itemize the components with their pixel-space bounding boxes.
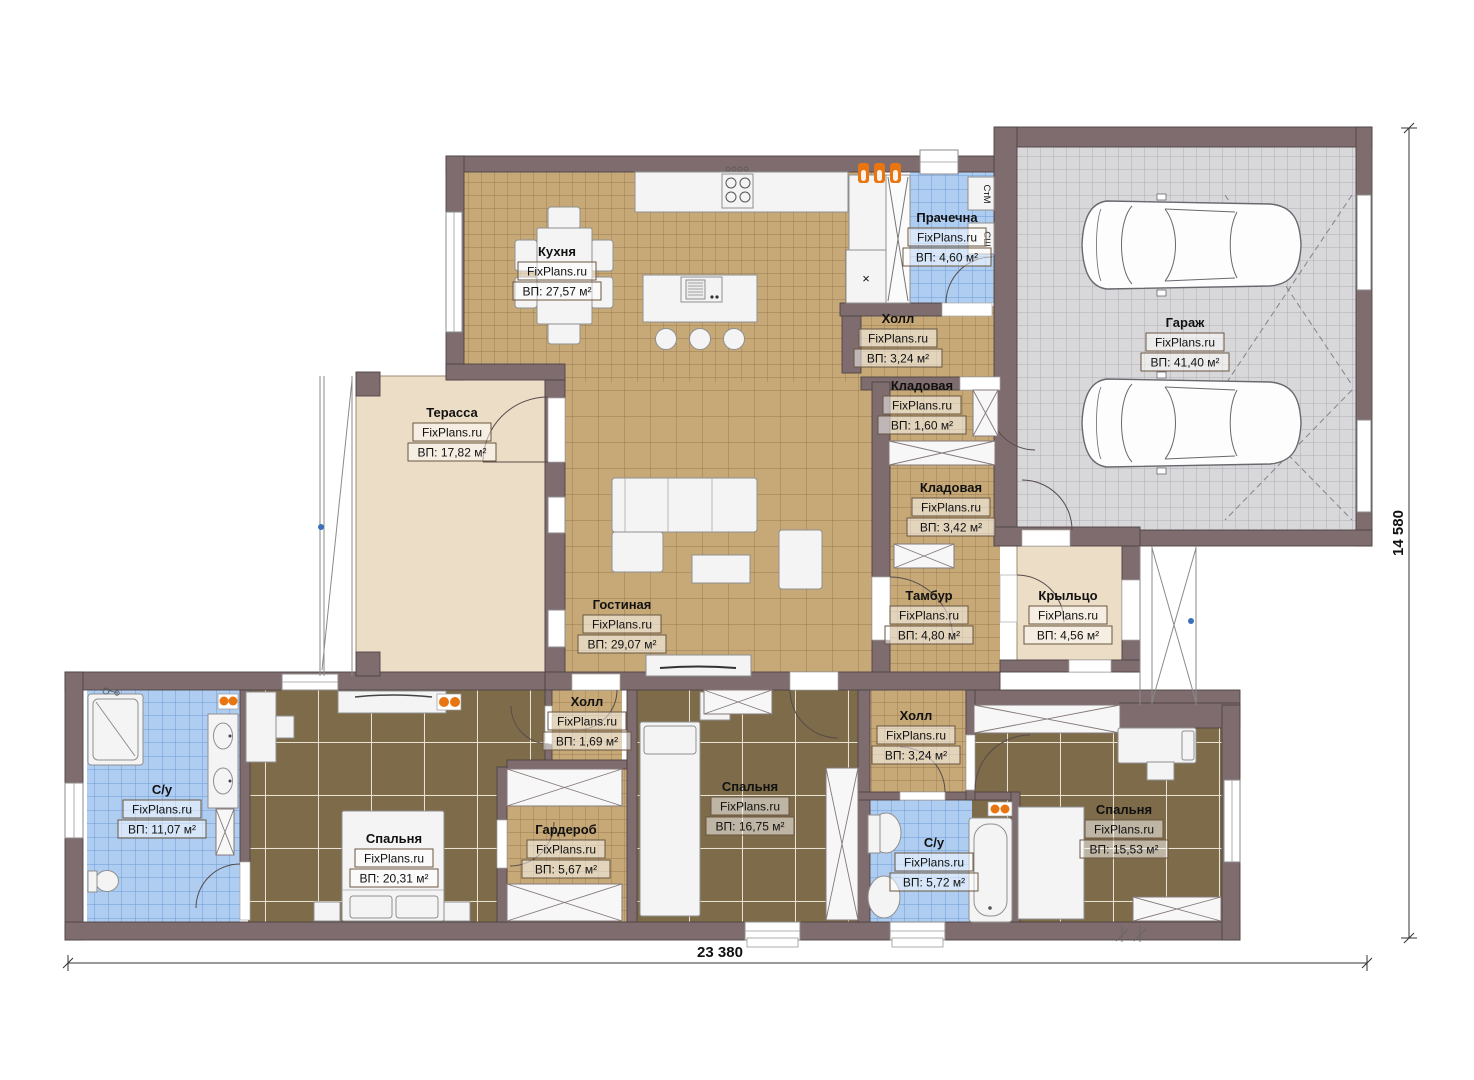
svg-text:ВП: 3,24 м²: ВП: 3,24 м² [867,352,929,366]
svg-text:23 380: 23 380 [697,944,743,961]
svg-text:Холл: Холл [900,708,933,723]
svg-text:ВП: 27,57 м²: ВП: 27,57 м² [523,285,592,299]
svg-text:СтМ: СтМ [981,184,992,203]
svg-text:ВП: 29,07 м²: ВП: 29,07 м² [588,638,657,652]
svg-text:ВП: 5,72 м²: ВП: 5,72 м² [903,876,965,890]
svg-text:FixPlans.ru: FixPlans.ru [892,399,952,413]
svg-text:Спальня: Спальня [722,779,778,794]
svg-text:ВП: 1,69 м²: ВП: 1,69 м² [556,735,618,749]
svg-text:Кухня: Кухня [538,244,576,259]
svg-text:С/у: С/у [924,835,945,850]
svg-text:ВП: 17,82 м²: ВП: 17,82 м² [418,446,487,460]
svg-text:С/у: С/у [152,782,173,797]
svg-text:×: × [862,271,870,286]
svg-text:Холл: Холл [882,311,915,326]
svg-text:ВП: 4,80 м²: ВП: 4,80 м² [898,629,960,643]
svg-text:ВП: 16,75 м²: ВП: 16,75 м² [716,820,785,834]
svg-text:FixPlans.ru: FixPlans.ru [899,609,959,623]
svg-text:Гостиная: Гостиная [593,597,652,612]
svg-text:Гараж: Гараж [1166,315,1206,330]
svg-text:ВП: 3,24 м²: ВП: 3,24 м² [885,749,947,763]
svg-text:ВП: 1,60 м²: ВП: 1,60 м² [891,419,953,433]
svg-text:FixPlans.ru: FixPlans.ru [868,332,928,346]
svg-text:FixPlans.ru: FixPlans.ru [1094,823,1154,837]
svg-text:FixPlans.ru: FixPlans.ru [557,715,617,729]
svg-text:Тамбур: Тамбур [905,588,952,603]
svg-text:ВП: 41,40 м²: ВП: 41,40 м² [1151,356,1220,370]
svg-text:14 580: 14 580 [1390,510,1407,556]
svg-text:ВП: 3,42 м²: ВП: 3,42 м² [920,521,982,535]
svg-text:Кладовая: Кладовая [920,480,982,495]
svg-text:ВП: 4,60 м²: ВП: 4,60 м² [916,251,978,265]
svg-text:Холл: Холл [571,694,604,709]
svg-text:FixPlans.ru: FixPlans.ru [1038,609,1098,623]
svg-text:FixPlans.ru: FixPlans.ru [422,426,482,440]
svg-text:FixPlans.ru: FixPlans.ru [921,501,981,515]
svg-text:FixPlans.ru: FixPlans.ru [917,231,977,245]
svg-text:Крыльцо: Крыльцо [1038,588,1097,603]
svg-text:ВП: 11,07 м²: ВП: 11,07 м² [128,823,196,837]
svg-text:FixPlans.ru: FixPlans.ru [592,618,652,632]
svg-text:Прачечна: Прачечна [916,210,978,225]
svg-text:ВП: 5,67 м²: ВП: 5,67 м² [535,863,597,877]
svg-text:Терасса: Терасса [426,405,478,420]
svg-text:FixPlans.ru: FixPlans.ru [132,803,192,817]
svg-text:FixPlans.ru: FixPlans.ru [886,729,946,743]
svg-text:Кладовая: Кладовая [891,378,953,393]
svg-text:FixPlans.ru: FixPlans.ru [1155,336,1215,350]
svg-text:ВП: 4,56 м²: ВП: 4,56 м² [1037,629,1099,643]
svg-text:FixPlans.ru: FixPlans.ru [720,800,780,814]
svg-text:Спальня: Спальня [366,831,422,846]
svg-text:FixPlans.ru: FixPlans.ru [536,843,596,857]
svg-text:FixPlans.ru: FixPlans.ru [364,852,424,866]
svg-text:ВП: 15,53 м²: ВП: 15,53 м² [1090,843,1159,857]
svg-text:Гардероб: Гардероб [535,822,596,837]
svg-text:FixPlans.ru: FixPlans.ru [904,856,964,870]
svg-text:Спальня: Спальня [1096,802,1152,817]
svg-text:ВП: 20,31 м²: ВП: 20,31 м² [360,872,429,886]
svg-text:FixPlans.ru: FixPlans.ru [527,265,587,279]
